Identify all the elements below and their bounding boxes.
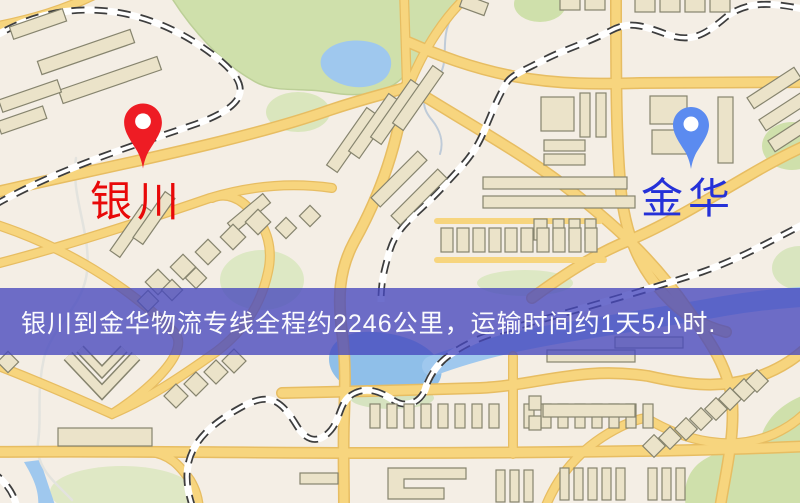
origin-marker[interactable] xyxy=(122,101,164,171)
origin-label: 银川 xyxy=(90,181,184,223)
map-background[interactable] xyxy=(0,0,800,503)
map-view: 银川 金华 银川到金华物流专线全程约2246公里，运输时间约1天5小时. xyxy=(0,0,800,503)
route-info-banner: 银川到金华物流专线全程约2246公里，运输时间约1天5小时. xyxy=(0,288,800,355)
route-info-text: 银川到金华物流专线全程约2246公里，运输时间约1天5小时. xyxy=(0,304,716,340)
destination-pin-icon xyxy=(670,106,712,170)
destination-marker[interactable] xyxy=(670,106,712,170)
origin-pin-icon xyxy=(122,101,164,171)
destination-label: 金华 xyxy=(641,178,735,220)
